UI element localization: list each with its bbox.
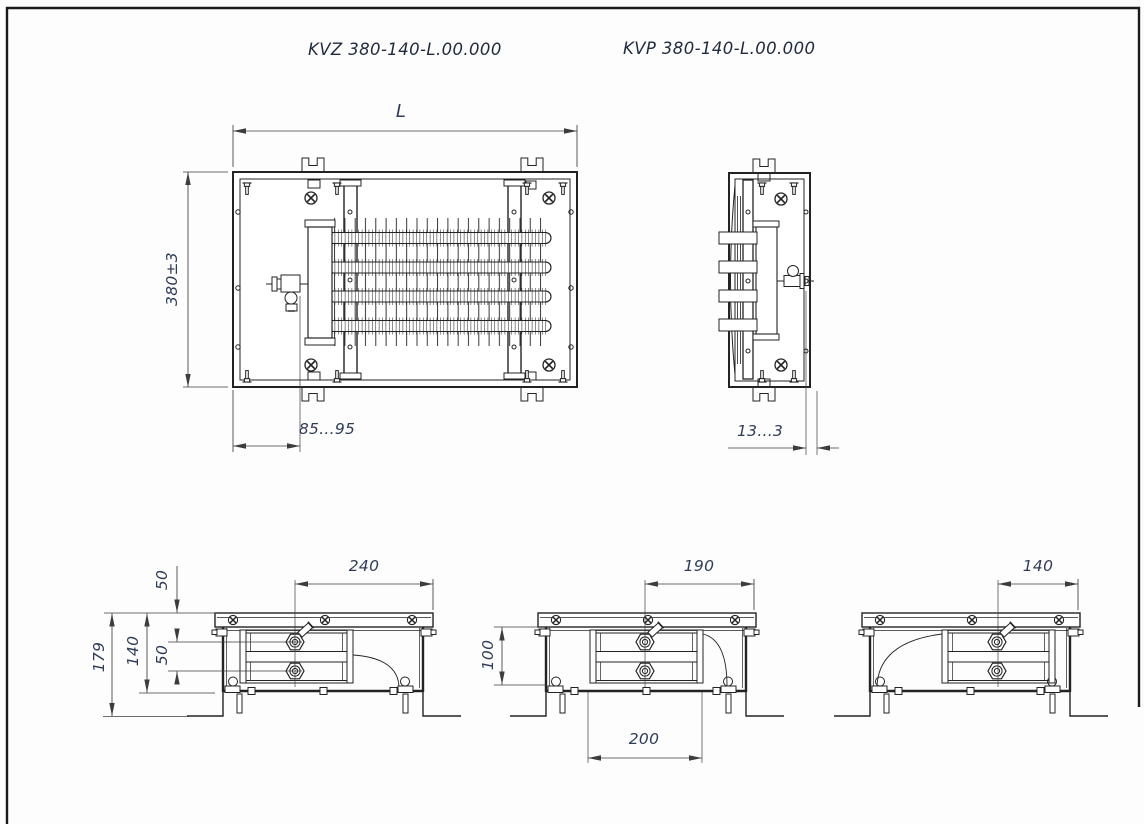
side-view-kvp bbox=[719, 159, 839, 455]
plan-view-kvz bbox=[183, 125, 577, 452]
drawing-title-kvp: KVP 380-140-L.00.000 bbox=[623, 41, 798, 57]
dim-label-sec-c-top-width: 140 bbox=[1011, 558, 1065, 574]
dim-label-side-valve-offset: 13...3 bbox=[737, 423, 783, 439]
dim-label-sec-a-tube-spacing: 50 bbox=[154, 639, 170, 671]
drawing-canvas: KVZ 380-140-L.00.000 KVP 380-140-L.00.00… bbox=[0, 0, 1144, 824]
cad-linework bbox=[0, 0, 1144, 824]
dim-label-sec-a-total-height: 179 bbox=[91, 633, 107, 681]
dim-label-sec-b-body-height: 100 bbox=[480, 632, 496, 678]
dim-label-sec-a-body-height: 140 bbox=[125, 628, 141, 674]
dim-label-plan-valve-offset: 85...95 bbox=[296, 421, 358, 437]
dim-label-sec-b-coil-width: 200 bbox=[617, 731, 671, 747]
dim-label-plan-height: 380±3 bbox=[164, 248, 180, 310]
dim-label-sec-a-recess-depth: 50 bbox=[154, 564, 170, 596]
section-view-c bbox=[834, 579, 1108, 716]
dim-label-sec-b-top-width: 190 bbox=[672, 558, 726, 574]
dim-label-sec-a-top-width: 240 bbox=[337, 558, 391, 574]
sheet-frame bbox=[7, 8, 1139, 824]
dim-label-plan-length: L bbox=[386, 104, 416, 120]
drawing-title-kvz: KVZ 380-140-L.00.000 bbox=[308, 42, 486, 58]
